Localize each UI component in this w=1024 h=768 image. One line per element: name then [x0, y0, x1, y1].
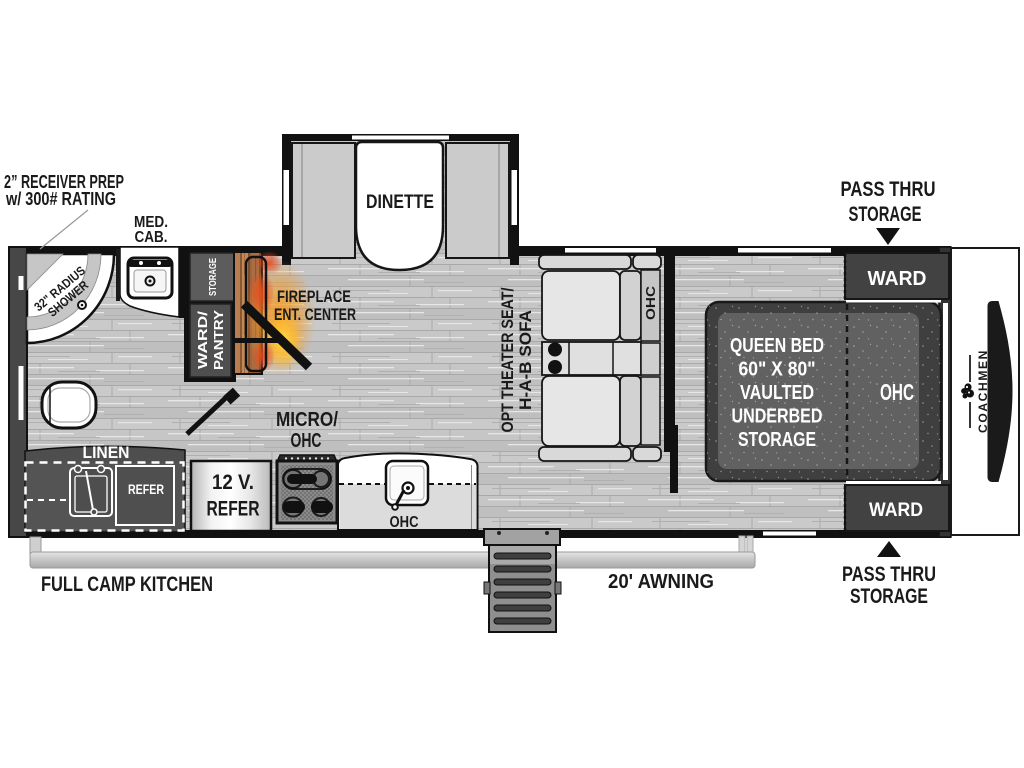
- svg-text:STORAGE: STORAGE: [738, 428, 816, 451]
- svg-text:WARD/: WARD/: [195, 311, 210, 369]
- svg-text:PANTRY: PANTRY: [211, 310, 226, 370]
- svg-text:w/ 300# RATING: w/ 300# RATING: [5, 189, 116, 209]
- svg-text:VAULTED: VAULTED: [740, 381, 814, 404]
- svg-text:OHC: OHC: [390, 514, 419, 531]
- svg-text:QUEEN BED: QUEEN BED: [730, 334, 824, 357]
- svg-text:STORAGE: STORAGE: [850, 585, 928, 608]
- svg-text:WARD: WARD: [868, 268, 927, 290]
- svg-text:MICRO/: MICRO/: [276, 408, 338, 431]
- svg-text:WARD: WARD: [869, 500, 923, 521]
- svg-text:UNDERBED: UNDERBED: [732, 405, 823, 428]
- svg-text:20' AWNING: 20' AWNING: [608, 571, 714, 593]
- svg-text:OHC: OHC: [643, 285, 658, 320]
- svg-text:FIREPLACE: FIREPLACE: [277, 288, 351, 306]
- svg-text:PASS THRU: PASS THRU: [842, 563, 936, 586]
- svg-text:OHC: OHC: [880, 379, 914, 405]
- svg-text:H-A-B SOFA: H-A-B SOFA: [516, 310, 535, 410]
- svg-text:DINETTE: DINETTE: [366, 191, 434, 213]
- svg-text:LINEN: LINEN: [83, 443, 130, 462]
- svg-text:REFER: REFER: [128, 482, 164, 497]
- svg-text:PASS THRU: PASS THRU: [841, 178, 936, 201]
- svg-text:OHC: OHC: [291, 429, 322, 452]
- svg-text:12 V.: 12 V.: [212, 471, 254, 494]
- svg-text:OPT THEATER SEAT/: OPT THEATER SEAT/: [498, 287, 517, 432]
- svg-text:STORAGE: STORAGE: [207, 258, 219, 296]
- svg-text:ENT. CENTER: ENT. CENTER: [274, 306, 356, 324]
- svg-text:REFER: REFER: [207, 498, 260, 521]
- svg-text:CAB.: CAB.: [135, 229, 168, 246]
- svg-text:60" X 80": 60" X 80": [739, 358, 816, 381]
- svg-text:FULL CAMP KITCHEN: FULL CAMP KITCHEN: [41, 572, 213, 596]
- svg-text:STORAGE: STORAGE: [849, 203, 922, 226]
